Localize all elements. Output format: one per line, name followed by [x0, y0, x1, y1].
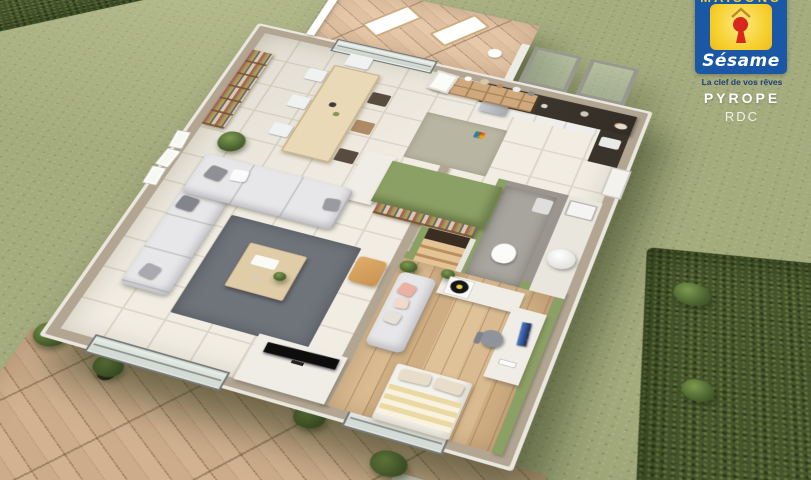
hedge-east	[601, 247, 811, 480]
terrace-side-table	[486, 48, 504, 59]
garden-ground	[0, 0, 811, 480]
brand-tagline: La clef de vos rêves	[688, 77, 796, 87]
terrace-wall	[306, 0, 347, 36]
model-name: PYROPE	[694, 90, 790, 106]
brand-name: Sésame	[695, 51, 787, 71]
sun-lounger	[429, 14, 490, 47]
scene-viewport: MAISONS Sésame La clef de vos rêves PYRO…	[0, 0, 811, 480]
sun-lounger	[361, 5, 422, 37]
logo-panel: MAISONS Sésame	[695, 0, 787, 74]
logo-yellow-square	[710, 4, 772, 50]
floor-label: RDC	[694, 109, 790, 124]
